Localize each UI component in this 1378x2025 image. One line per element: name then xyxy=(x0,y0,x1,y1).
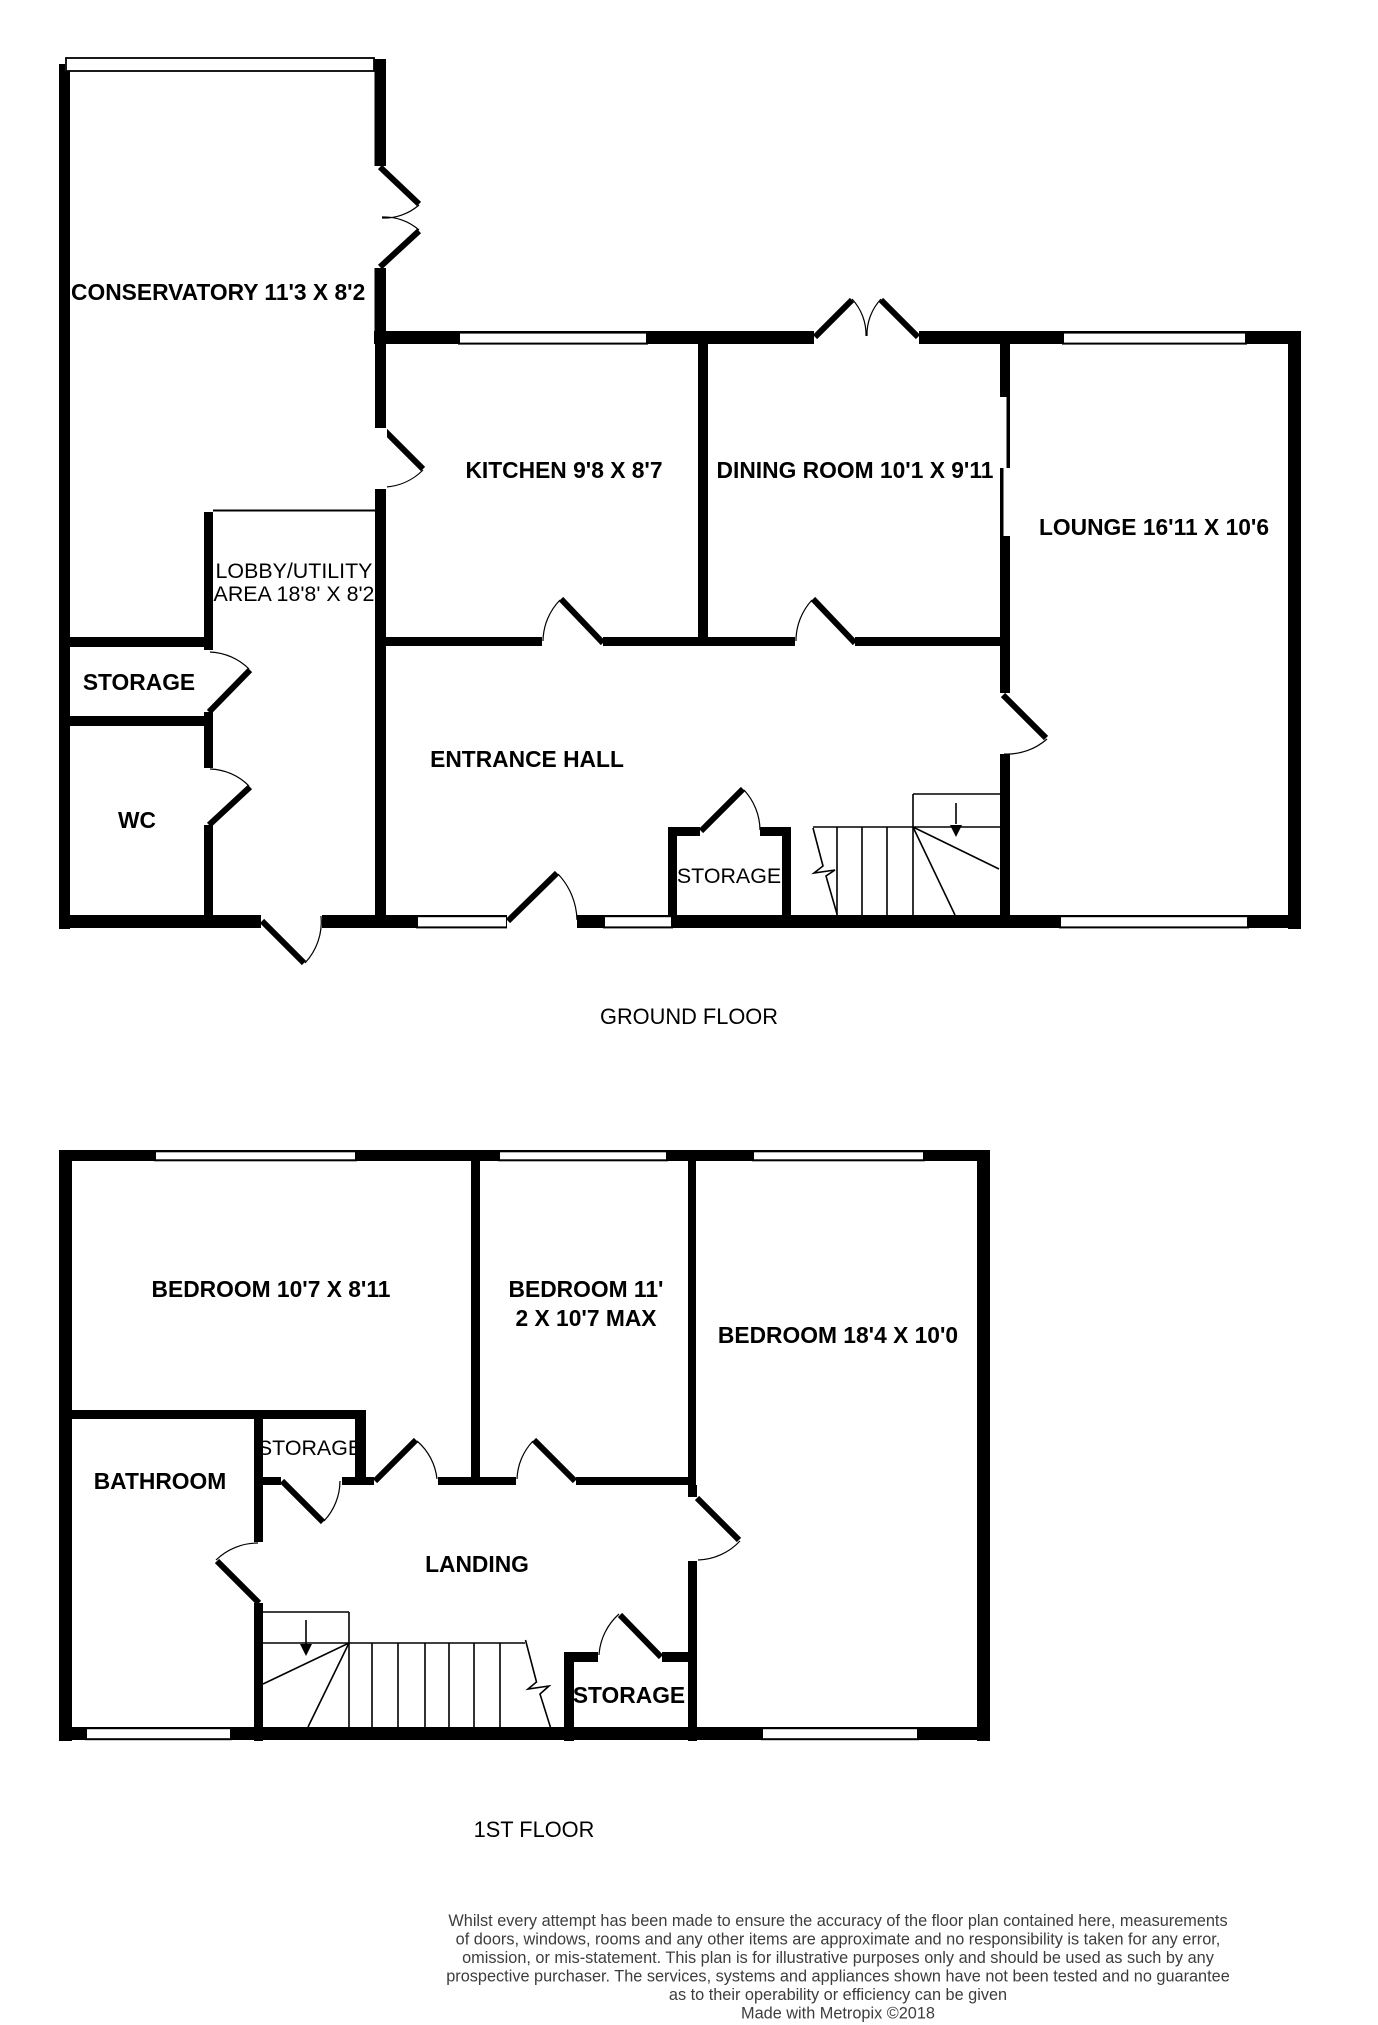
svg-text:CONSERVATORY 11'3 X 8'2: CONSERVATORY 11'3 X 8'2 xyxy=(71,279,365,305)
svg-text:of doors, windows, rooms and a: of doors, windows, rooms and any other i… xyxy=(456,1931,1221,1949)
svg-text:LOBBY/UTILITY: LOBBY/UTILITY xyxy=(216,559,373,583)
svg-text:LOUNGE 16'11 X 10'6: LOUNGE 16'11 X 10'6 xyxy=(1039,514,1269,540)
svg-text:ENTRANCE HALL: ENTRANCE HALL xyxy=(430,746,624,772)
svg-text:1ST FLOOR: 1ST FLOOR xyxy=(474,1817,595,1842)
svg-text:BEDROOM 18'4 X 10'0: BEDROOM 18'4 X 10'0 xyxy=(718,1322,958,1348)
svg-text:as to their operability or eff: as to their operability or efficiency ca… xyxy=(669,1986,1007,2004)
svg-text:BEDROOM 11': BEDROOM 11' xyxy=(509,1276,664,1302)
svg-text:Whilst every attempt has been: Whilst every attempt has been made to en… xyxy=(448,1912,1227,1930)
svg-text:omission, or mis-statement. Th: omission, or mis-statement. This plan is… xyxy=(462,1949,1215,1967)
svg-text:Made with Metropix ©2018: Made with Metropix ©2018 xyxy=(741,2005,935,2023)
svg-text:AREA 18'8' X 8'2: AREA 18'8' X 8'2 xyxy=(214,582,375,606)
svg-text:STORAGE: STORAGE xyxy=(677,864,781,888)
svg-text:DINING ROOM 10'1 X 9'11: DINING ROOM 10'1 X 9'11 xyxy=(717,457,994,483)
svg-text:STORAGE: STORAGE xyxy=(573,1682,685,1708)
svg-text:WC: WC xyxy=(118,807,156,833)
svg-text:BEDROOM 10'7 X 8'11: BEDROOM 10'7 X 8'11 xyxy=(152,1276,391,1302)
svg-text:GROUND FLOOR: GROUND FLOOR xyxy=(600,1004,778,1029)
svg-text:STORAGE: STORAGE xyxy=(258,1436,362,1460)
svg-text:KITCHEN 9'8 X 8'7: KITCHEN 9'8 X 8'7 xyxy=(465,457,662,483)
svg-text:BATHROOM: BATHROOM xyxy=(94,1468,227,1494)
svg-text:prospective purchaser. The ser: prospective purchaser. The services, sys… xyxy=(446,1968,1230,1986)
svg-text:LANDING: LANDING xyxy=(425,1551,529,1577)
svg-text:STORAGE: STORAGE xyxy=(83,669,195,695)
svg-text:2 X 10'7 MAX: 2 X 10'7 MAX xyxy=(515,1305,656,1331)
